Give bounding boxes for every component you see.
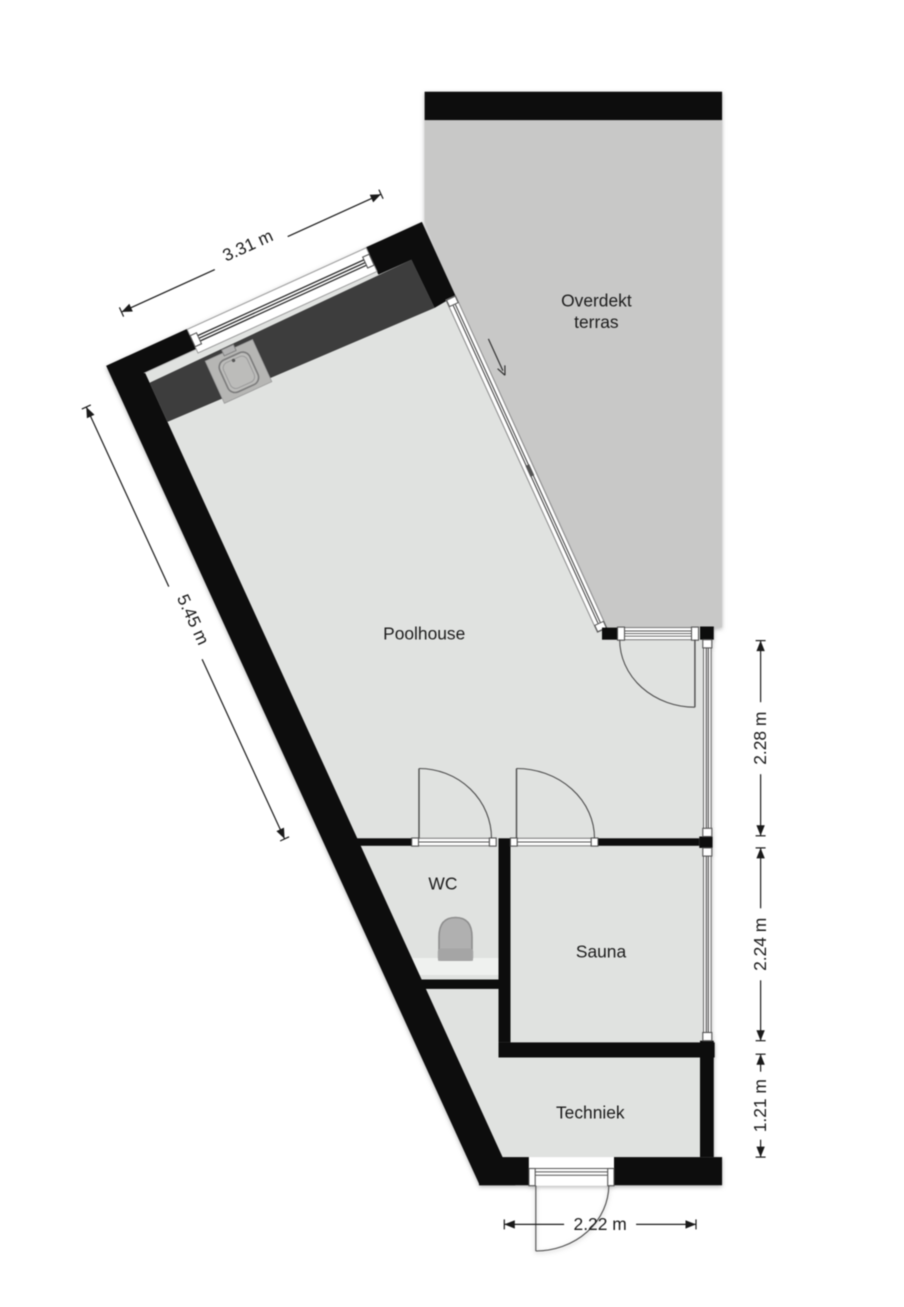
svg-text:2.24 m: 2.24 m: [750, 918, 770, 971]
svg-text:Poolhouse: Poolhouse: [383, 623, 465, 643]
svg-text:2.22 m: 2.22 m: [574, 1214, 627, 1234]
svg-text:Overdekt: Overdekt: [561, 290, 632, 310]
svg-text:Sauna: Sauna: [576, 942, 627, 962]
svg-text:WC: WC: [428, 874, 457, 894]
svg-text:2.28 m: 2.28 m: [750, 712, 770, 765]
svg-text:terras: terras: [574, 312, 619, 332]
svg-text:1.21 m: 1.21 m: [750, 1079, 770, 1132]
svg-text:Techniek: Techniek: [556, 1103, 625, 1123]
